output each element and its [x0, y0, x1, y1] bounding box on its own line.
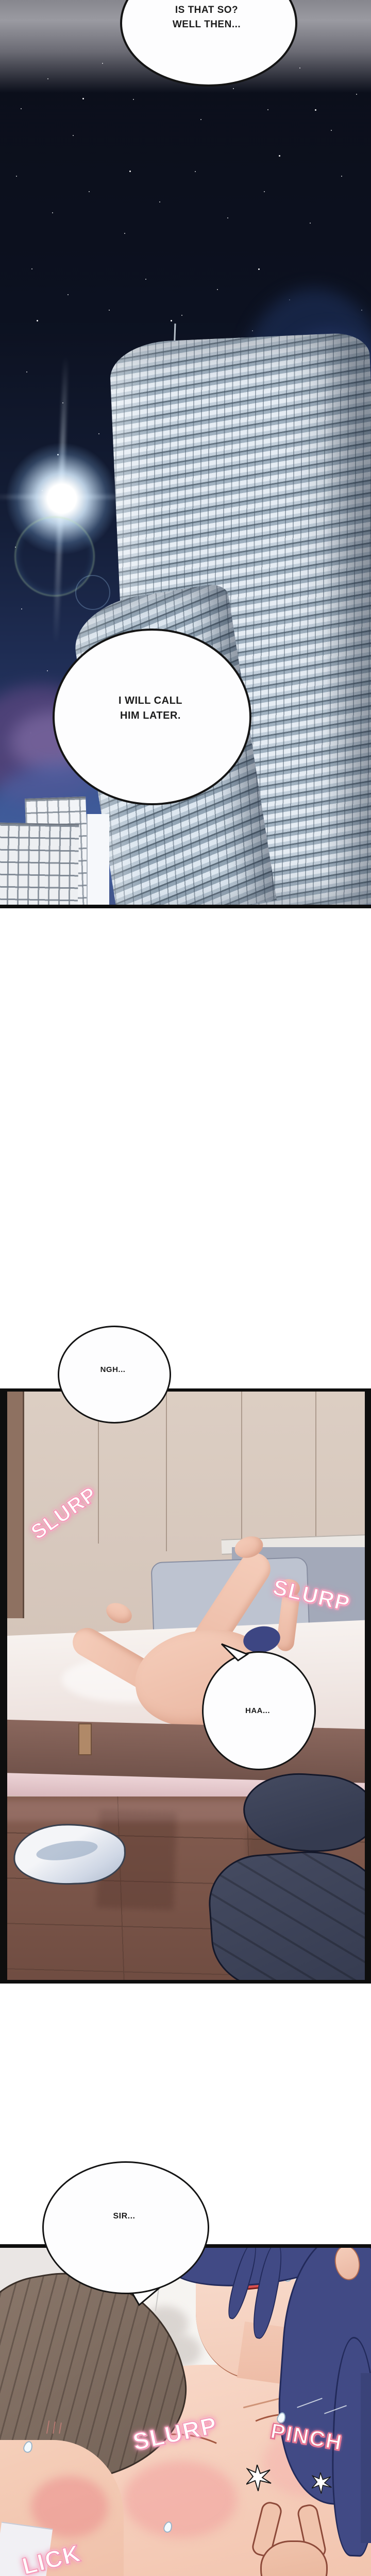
webtoon-page: I WILL CALL HIM LATER. IS THAT SO? WELL …	[0, 0, 371, 2576]
panel-border-top	[0, 1388, 371, 1392]
speech-text-ngh: NGH...	[68, 1364, 158, 1376]
small-building-front	[0, 823, 79, 908]
speech-line: HIM LATER.	[92, 708, 209, 723]
panel-border-bottom	[0, 1980, 371, 1984]
pinch-spark	[312, 2472, 332, 2494]
panel-closeup: SLURP PINCH LICK	[0, 2244, 371, 2576]
wardrobe-strip	[7, 1392, 24, 1618]
panel-border-bottom	[0, 905, 371, 908]
sfx-slurp-left: SLURP	[18, 1476, 111, 1551]
lens-flare-ring-small	[75, 575, 110, 610]
speech-tail-haa	[216, 1642, 249, 1669]
small-building-sliver	[87, 814, 109, 908]
wall-seam	[315, 1392, 316, 1540]
speech-bubble-sir	[42, 2161, 209, 2294]
clothes-pants	[206, 1846, 371, 1984]
speech-text-sir: SIR...	[76, 2210, 173, 2222]
wall-seam	[166, 1392, 167, 1551]
speech-text-is-that-so: IS THAT SO? WELL THEN...	[130, 3, 283, 31]
moon-core	[49, 486, 73, 510]
stars-medium	[0, 0, 2, 2]
panel-night-city: I WILL CALL HIM LATER.	[0, 0, 371, 908]
speech-text-call-later: I WILL CALL HIM LATER.	[92, 693, 209, 723]
speech-line: IS THAT SO?	[130, 3, 283, 18]
bed-post	[78, 1723, 92, 1755]
figure-foot-left	[103, 1599, 135, 1628]
woman-hair-strand-edge	[361, 2373, 371, 2543]
speech-line: WELL THEN...	[130, 18, 283, 32]
panel-bedroom: SLURP SLURP HAA...	[0, 1388, 371, 1984]
speech-text-haa: HAA...	[216, 1705, 299, 1717]
panel-border-right	[365, 1388, 371, 1984]
speech-line: I WILL CALL	[92, 693, 209, 708]
panel-border-left	[0, 1388, 7, 1984]
pinch-spark	[246, 2465, 272, 2492]
wall-seam	[241, 1392, 242, 1544]
